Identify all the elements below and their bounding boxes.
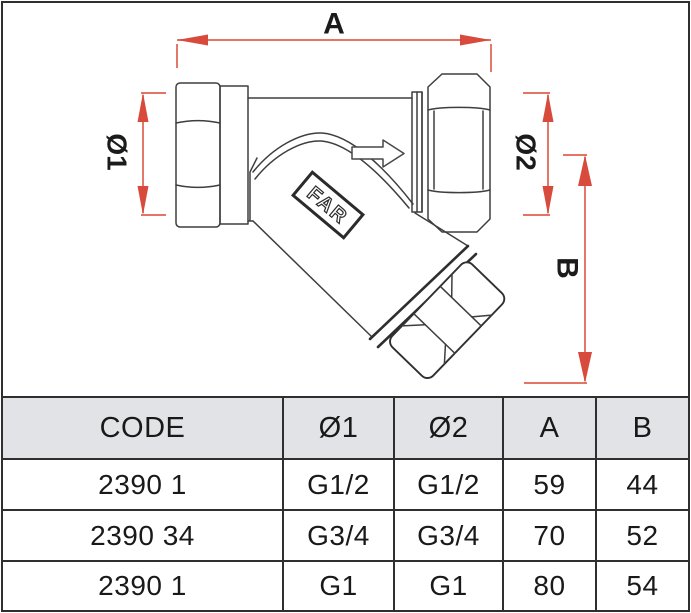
table-cell-a: 70: [502, 509, 595, 560]
table-header-b: B: [595, 396, 688, 458]
table-cell-d2: G1: [393, 560, 502, 610]
dimension-d1: [138, 93, 167, 215]
right-hex-nut: [428, 74, 490, 232]
table-header-d1: Ø1: [282, 396, 393, 458]
left-hex-nut: [176, 83, 220, 227]
table-cell-code: 2390 1: [3, 458, 282, 509]
table-header-code: CODE: [3, 396, 282, 458]
dimensions-table: CODE Ø1 Ø2 A B 2390 1 G1/2 G1/2 59 44 23…: [3, 396, 688, 610]
table-header-a: A: [502, 396, 595, 458]
valve-technical-drawing: FAR A Ø1 Ø2 B: [0, 0, 691, 396]
table-cell-d1: G1: [282, 560, 393, 610]
dimension-d1-label: Ø1: [102, 133, 133, 170]
table-cell-code: 2390 34: [3, 509, 282, 560]
table-cell-code: 2390 1: [3, 560, 282, 610]
dimension-b-label: B: [551, 257, 584, 279]
table-cell-d1: G1/2: [282, 458, 393, 509]
table-cell-b: 44: [595, 458, 688, 509]
far-logo-plate: FAR: [293, 172, 363, 237]
table-cell-b: 52: [595, 509, 688, 560]
dimension-a-label: A: [323, 8, 345, 41]
table-header-d2: Ø2: [393, 396, 502, 458]
table-cell-d2: G3/4: [393, 509, 502, 560]
dimension-d2-label: Ø2: [511, 133, 542, 170]
strainer-datasheet: FAR A Ø1 Ø2 B: [0, 0, 691, 613]
table-cell-d2: G1/2: [393, 458, 502, 509]
table-cell-d1: G3/4: [282, 509, 393, 560]
flow-direction-arrow-icon: [352, 140, 404, 167]
table-cell-a: 80: [502, 560, 595, 610]
left-collar: [220, 86, 248, 224]
table-cell-b: 54: [595, 560, 688, 610]
table-cell-a: 59: [502, 458, 595, 509]
